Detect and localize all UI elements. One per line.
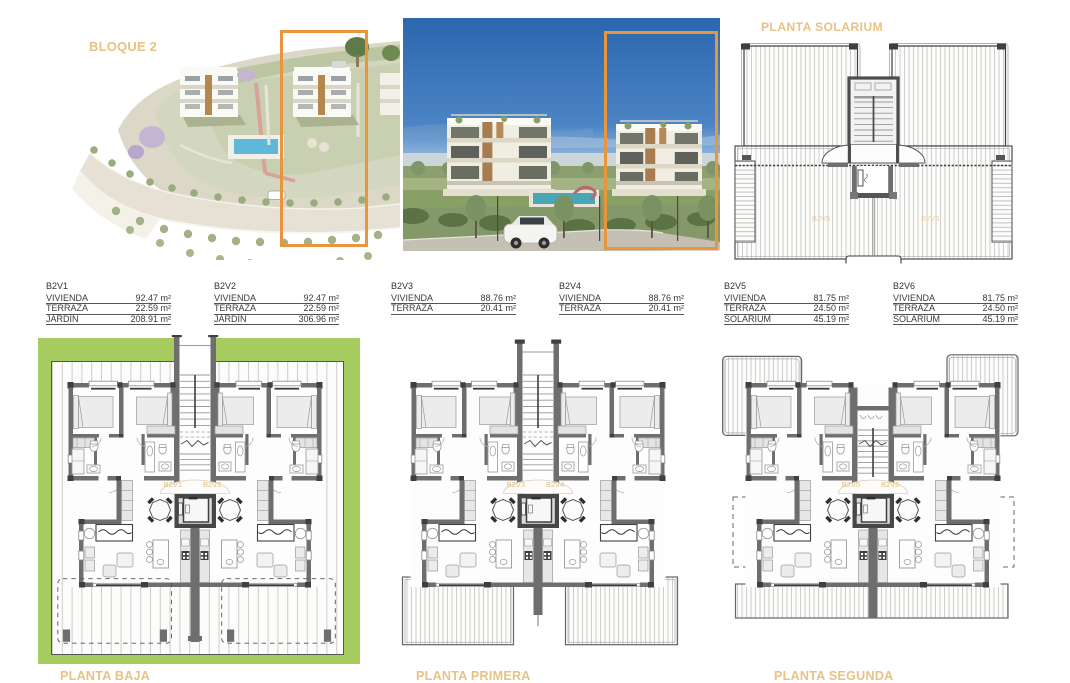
svg-text:B2V6: B2V6: [921, 214, 939, 223]
svg-text:B2V4: B2V4: [546, 480, 564, 489]
svg-text:B2V5: B2V5: [842, 480, 860, 489]
svg-text:B2V5: B2V5: [812, 214, 830, 223]
svg-text:B2V1: B2V1: [164, 480, 182, 489]
svg-text:B2V3: B2V3: [507, 480, 525, 489]
svg-text:B2V2: B2V2: [203, 480, 221, 489]
svg-text:B2V6: B2V6: [881, 480, 899, 489]
